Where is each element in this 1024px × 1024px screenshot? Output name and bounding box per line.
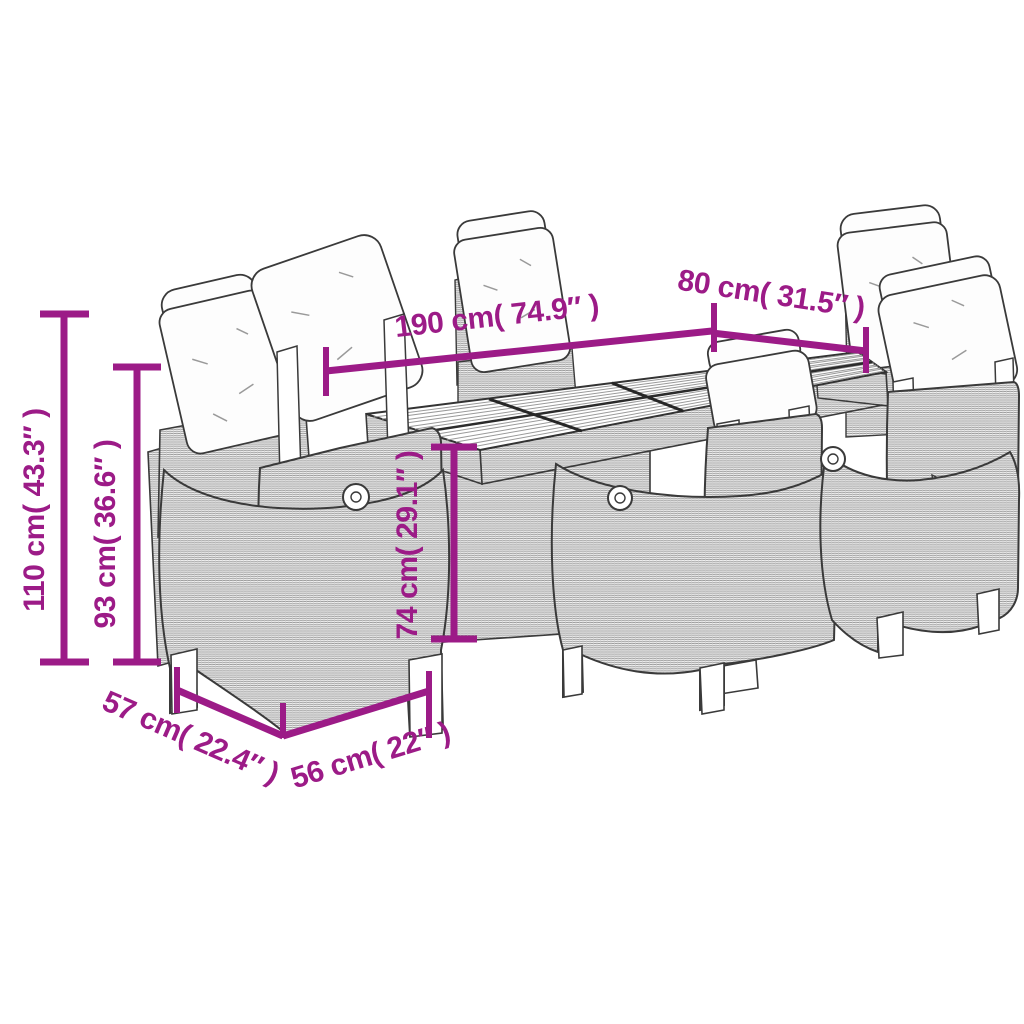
product-dimension-diagram: 190 cm( 74.9″ ) 80 cm( 31.5″ ) 110 cm( 4…: [0, 0, 1024, 1024]
label-height-table: 74 cm( 29.1″ ): [391, 451, 424, 640]
label-height-total: 110 cm( 43.3″ ): [18, 408, 51, 612]
recline-knob-center: [828, 454, 838, 464]
seat-body: [552, 464, 838, 710]
label-height-backrest: 93 cm( 36.6″ ): [89, 440, 122, 629]
front-leg-right: [700, 663, 724, 714]
label-table-width: 80 cm( 31.5″ ): [675, 264, 867, 326]
front-leg-left: [563, 646, 582, 697]
recline-knob-center: [351, 492, 361, 502]
front-leg-right: [977, 589, 999, 634]
front-leg-left: [877, 612, 903, 658]
recline-knob-center: [615, 493, 625, 503]
